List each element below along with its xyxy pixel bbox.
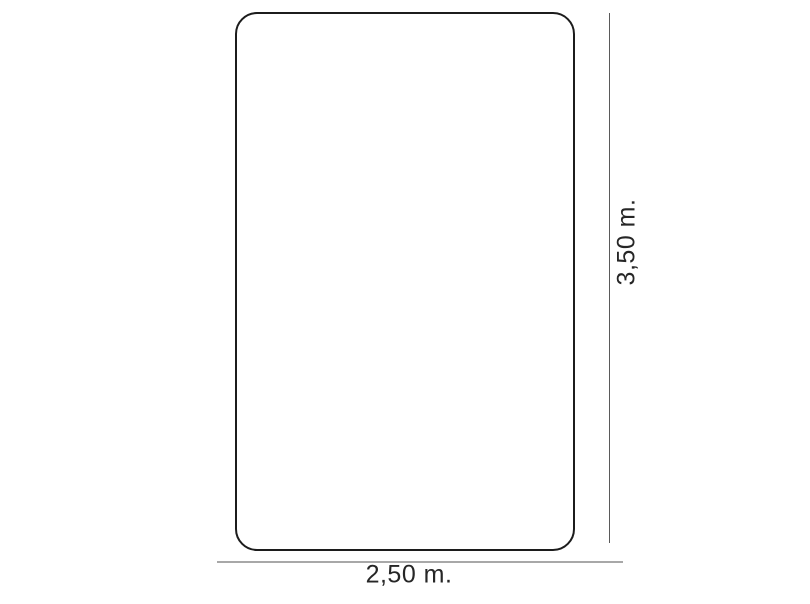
dimension-diagram: 3,50 m. 2,50 m.: [0, 0, 810, 590]
product-outline-rectangle: [235, 12, 575, 551]
width-dimension-label: 2,50 m.: [366, 561, 453, 590]
height-dimension-label: 3,50 m.: [613, 199, 642, 286]
height-dimension-line: [609, 13, 610, 543]
